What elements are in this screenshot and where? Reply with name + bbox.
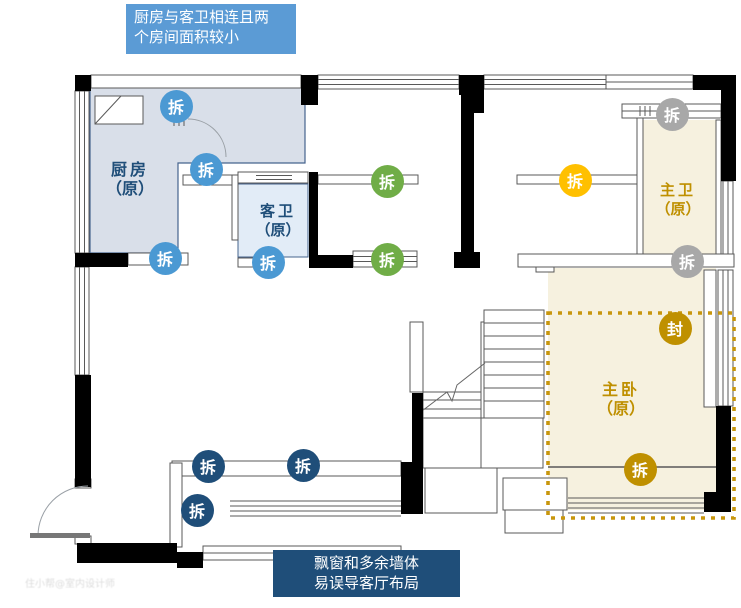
staircase	[410, 310, 567, 533]
demolish-badge: 拆	[149, 242, 182, 275]
bottom-annotation-line2: 易误导客厅布局	[273, 573, 460, 593]
entrance-door-arc	[38, 486, 88, 536]
kitchen-label: 厨房 （原）	[95, 160, 165, 198]
top-annotation-line1: 厨房与客卫相连且两	[134, 7, 288, 27]
master-bed-status: （原）	[586, 399, 656, 418]
plan-drawing	[0, 0, 741, 608]
demolish-badge: 拆	[160, 90, 193, 123]
floor-plan: 厨房 （原） 客卫 （原） 主卫 （原） 主卧 （原） 拆拆拆拆拆拆拆拆拆封拆拆…	[0, 0, 741, 608]
demolish-badge: 拆	[190, 153, 223, 186]
bottom-annotation-line1: 飘窗和多余墙体	[273, 553, 460, 573]
top-annotation: 厨房与客卫相连且两 个房间面积较小	[126, 4, 296, 54]
entrance-door-leaf	[30, 533, 90, 538]
kitchen-name: 厨房	[95, 160, 165, 179]
demolish-badge: 拆	[559, 164, 592, 197]
demolish-badge: 拆	[671, 245, 704, 278]
demolish-badge: 拆	[371, 165, 404, 198]
demolish-badge: 拆	[181, 494, 214, 527]
guest-bath-name: 客卫	[243, 202, 313, 221]
master-bath-status: （原）	[643, 200, 713, 219]
guest-bath-status: （原）	[243, 221, 313, 240]
top-annotation-line2: 个房间面积较小	[134, 27, 288, 47]
master-bath-label: 主卫 （原）	[643, 181, 713, 219]
demolish-badge: 拆	[371, 243, 404, 276]
demolish-badge: 拆	[287, 449, 320, 482]
guest-bath-label: 客卫 （原）	[243, 202, 313, 240]
seal-badge: 封	[659, 312, 692, 345]
master-bed-label: 主卧 （原）	[586, 380, 656, 418]
kitchen-status: （原）	[95, 179, 165, 198]
demolish-badge: 拆	[624, 453, 657, 486]
demolish-badge: 拆	[656, 98, 689, 131]
master-bath-name: 主卫	[643, 181, 713, 200]
room-shades	[90, 87, 716, 510]
demolish-badge: 拆	[192, 450, 225, 483]
master-bed-name: 主卧	[586, 380, 656, 399]
bottom-annotation: 飘窗和多余墙体 易误导客厅布局	[273, 550, 460, 597]
watermark: 住小帮@室内设计师	[25, 575, 115, 590]
demolish-badge: 拆	[252, 246, 285, 279]
